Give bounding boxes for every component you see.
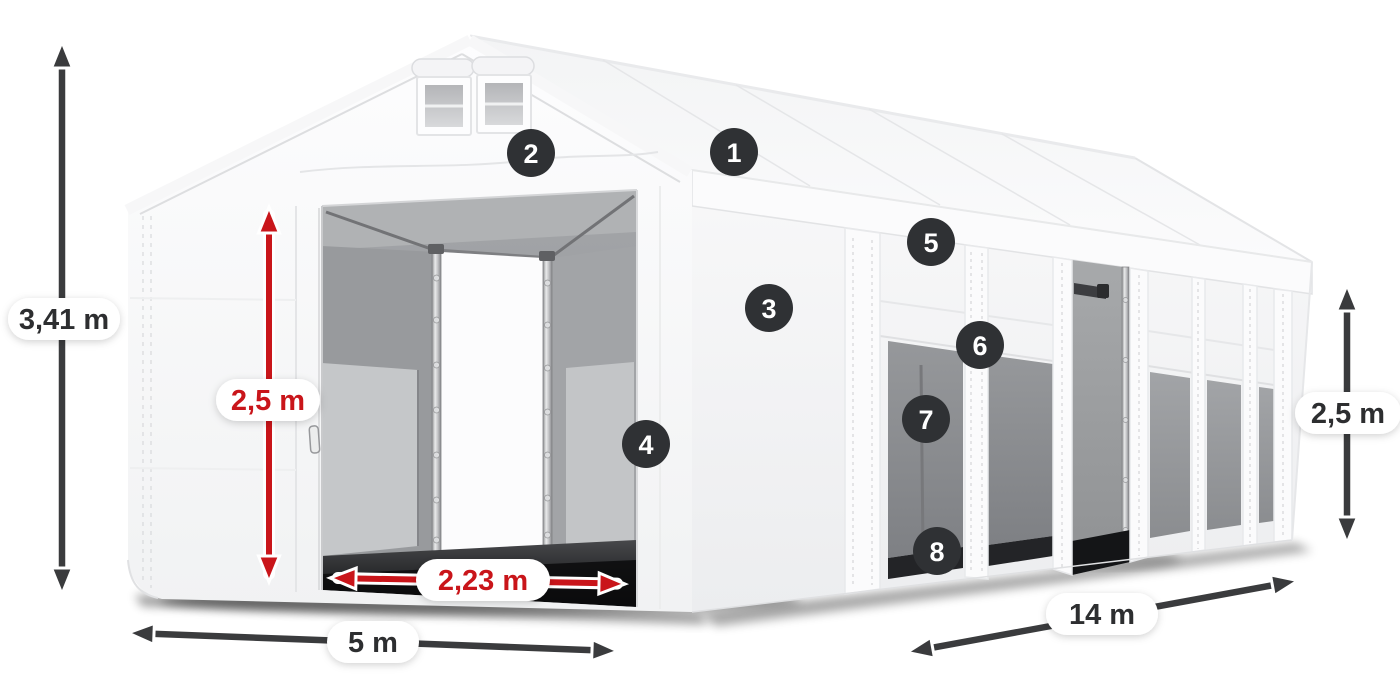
arrowhead-right xyxy=(592,640,619,662)
arrowhead-left xyxy=(128,622,155,644)
front-entrance-interior xyxy=(315,185,645,615)
vent-roll-right xyxy=(472,57,534,75)
middle-door-open-gap xyxy=(441,252,543,561)
callout-2-number: 2 xyxy=(523,139,538,169)
callout-2: 2 xyxy=(507,129,555,177)
arrowhead-right xyxy=(1271,570,1300,595)
dimension-width: 5 m xyxy=(128,621,619,663)
interior-left-window xyxy=(322,363,418,556)
callout-1: 1 xyxy=(710,128,758,176)
length-label: 14 m xyxy=(1069,599,1135,631)
side-height-label: 2,5 m xyxy=(1311,398,1385,430)
callout-1-number: 1 xyxy=(726,138,741,168)
side-window-4 xyxy=(1207,380,1241,530)
dimension-total-height: 3,41 m xyxy=(8,42,120,594)
side-window-1 xyxy=(888,341,963,558)
callout-4-number: 4 xyxy=(638,430,653,460)
callout-3: 3 xyxy=(745,284,793,332)
side-window-2 xyxy=(988,355,1053,545)
callout-6-number: 6 xyxy=(972,331,987,361)
tent-illustration: 3,41 m 2,5 m 2,23 m 5 m 14 m xyxy=(0,0,1400,700)
middle-door-right-window xyxy=(566,362,634,548)
side-window-3 xyxy=(1150,372,1190,538)
vent-roll-left xyxy=(412,59,474,77)
dimension-side-height: 2,5 m xyxy=(1295,285,1400,543)
entrance-width-label: 2,23 m xyxy=(438,565,528,597)
callout-5-number: 5 xyxy=(923,228,938,258)
callout-8: 8 xyxy=(913,527,961,575)
arrowhead-down xyxy=(1337,517,1358,543)
arrowhead-left xyxy=(905,637,934,662)
arrowhead-up xyxy=(52,42,73,68)
callout-4: 4 xyxy=(622,420,670,468)
callout-6: 6 xyxy=(956,321,1004,369)
callout-3-number: 3 xyxy=(761,294,776,324)
callout-5: 5 xyxy=(907,218,955,266)
entrance-height-label: 2,5 m xyxy=(231,385,305,417)
side-door-pole xyxy=(1122,267,1129,560)
width-label: 5 m xyxy=(348,627,398,659)
callout-7-number: 7 xyxy=(918,405,933,435)
door-handle xyxy=(309,426,320,454)
tent-dimensions-diagram: 3,41 m 2,5 m 2,23 m 5 m 14 m xyxy=(0,0,1400,700)
total-height-label: 3,41 m xyxy=(19,304,109,336)
arrowhead-up xyxy=(1337,285,1358,311)
side-door-open xyxy=(1072,260,1130,575)
callout-7: 7 xyxy=(902,395,950,443)
callout-8-number: 8 xyxy=(929,537,944,567)
arrowhead-down xyxy=(52,568,73,594)
